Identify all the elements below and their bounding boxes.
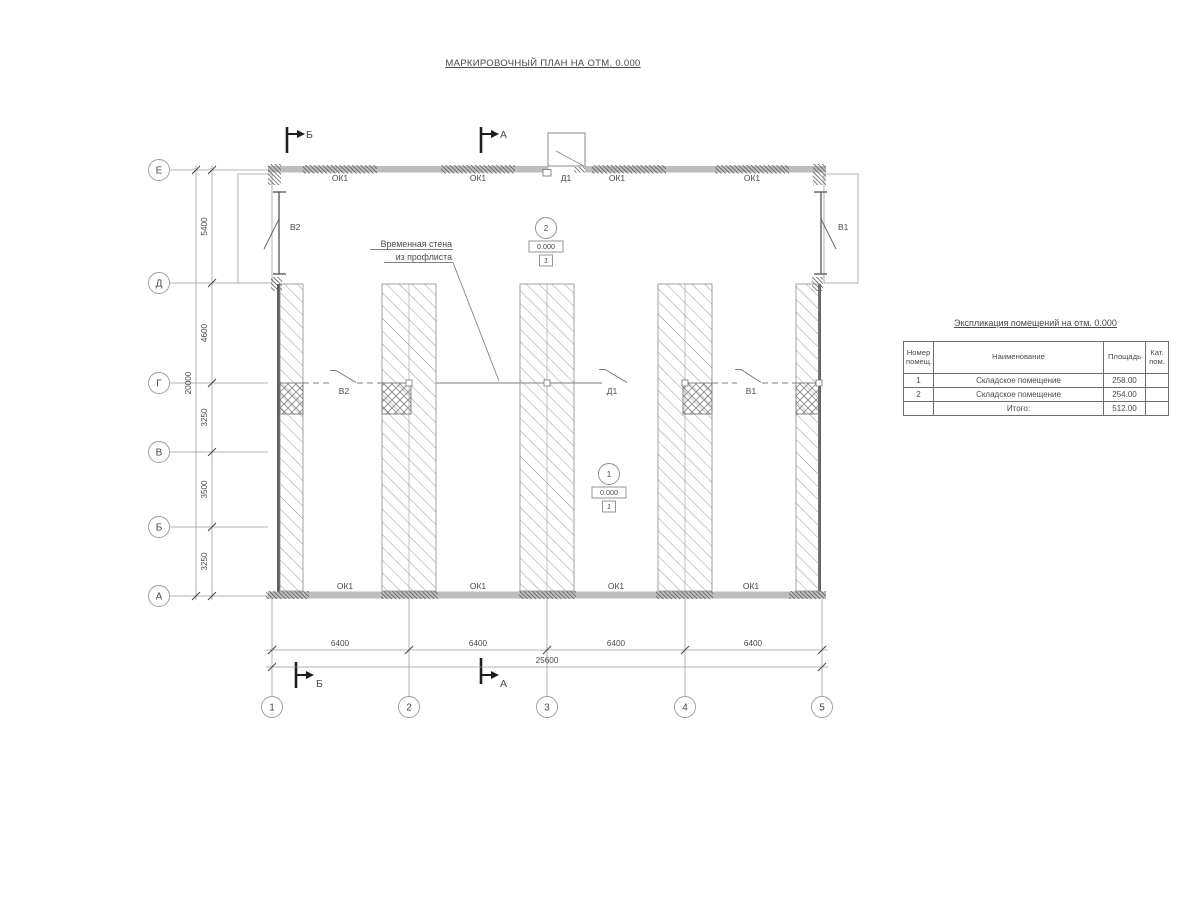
- door-swing-v1: [735, 370, 761, 383]
- axis-row-g: Г: [156, 379, 162, 390]
- gate-v1: [814, 192, 836, 274]
- section-marker-bottom-a: А: [481, 658, 507, 690]
- room-number: 1: [607, 470, 612, 479]
- cell-room-number: 2: [904, 388, 934, 402]
- schedule-table: Номер помещ. Наименование Площадь Кат. п…: [903, 341, 1169, 416]
- header-area: Площадь: [1104, 342, 1146, 374]
- total-row: Итого: 512.00: [904, 402, 1169, 416]
- axis-col-1: 1: [269, 703, 275, 714]
- cell-room-area: 258.00: [1104, 374, 1146, 388]
- header-room-number: Номер помещ.: [904, 342, 934, 374]
- dim-2-3: 6400: [469, 639, 488, 648]
- bottom-wall-pier-1: [266, 591, 309, 599]
- axis-row-e: Е: [156, 166, 163, 177]
- pilaster-strip-axis1: [280, 284, 303, 591]
- label-ok1-bottom-2: ОК1: [470, 581, 487, 591]
- label-ok1-bottom-1: ОК1: [337, 581, 354, 591]
- axis-row-d: Д: [156, 279, 163, 290]
- bottom-wall-pier-4: [656, 591, 713, 599]
- cell-room-category: [1146, 374, 1169, 388]
- callout-text-line2: из профлиста: [396, 252, 452, 262]
- section-marker-bottom-b: Б: [296, 662, 323, 690]
- dim-v-b: 3500: [200, 480, 209, 499]
- svg-text:Б: Б: [316, 678, 323, 690]
- room-tag-2: 2 0.000 1: [529, 218, 563, 267]
- pilaster-strip-axis2: [382, 284, 436, 591]
- cell-room-category: [1146, 388, 1169, 402]
- svg-text:А: А: [500, 678, 507, 690]
- dim-b-a: 3250: [200, 552, 209, 571]
- table-row: 1 Складское помещение 258.00: [904, 374, 1169, 388]
- room-elevation: 0.000: [537, 242, 555, 251]
- total-label: Итого:: [934, 402, 1104, 416]
- section-marker-top-b: Б: [287, 127, 313, 153]
- cell-room-area: 254.00: [1104, 388, 1146, 402]
- schedule-header-row: Номер помещ. Наименование Площадь Кат. п…: [904, 342, 1169, 374]
- door-swing-v2: [330, 371, 356, 383]
- top-right-corner: [813, 164, 826, 185]
- label-v1-mid: В1: [746, 386, 757, 396]
- axis-col-3: 3: [544, 703, 550, 714]
- column-axis-bubbles: 1 2 3 4 5: [262, 697, 833, 718]
- pilaster-strip-axis4: [658, 284, 712, 591]
- cell-empty: [1146, 402, 1169, 416]
- cell-room-name: Складское помещение: [934, 374, 1104, 388]
- left-apron: [238, 174, 272, 283]
- room-elevation: 0.000: [600, 488, 618, 497]
- gate-v2: [264, 192, 286, 274]
- door-sill: [574, 167, 585, 173]
- label-v2-side: В2: [290, 222, 301, 232]
- top-window-3: [592, 165, 666, 174]
- axis-col-2: 2: [406, 703, 412, 714]
- dim-1-2: 6400: [331, 639, 350, 648]
- pilaster-strip-axis3: [520, 284, 574, 591]
- dim-e-d: 5400: [200, 217, 209, 236]
- cell-room-name: Складское помещение: [934, 388, 1104, 402]
- label-d1-mid: Д1: [607, 386, 618, 396]
- axis-row-a: А: [156, 592, 163, 603]
- table-row: 2 Складское помещение 254.00: [904, 388, 1169, 402]
- top-left-corner: [268, 164, 281, 185]
- row-axis-bubbles: Е Д Г В Б А: [149, 160, 170, 607]
- dim-3-4: 6400: [607, 639, 626, 648]
- pilaster-strip-axis5: [796, 284, 819, 591]
- label-ok1-top-4: ОК1: [744, 173, 761, 183]
- svg-text:А: А: [500, 129, 507, 141]
- label-ok1-top-3: ОК1: [609, 173, 626, 183]
- section-marker-top-a: А: [481, 127, 507, 153]
- axis-col-4: 4: [682, 703, 688, 714]
- schedule-title: Экспликация помещений на отм. 0.000: [903, 318, 1168, 328]
- label-ok1-top-1: ОК1: [332, 173, 349, 183]
- door-jamb-mark: [543, 170, 551, 177]
- axis-row-v: В: [156, 448, 163, 459]
- cell-room-number: 1: [904, 374, 934, 388]
- room-tag-1: 1 0.000 1: [592, 464, 626, 513]
- floor-plan-drawing: ОК1 ОК1 ОК1 ОК1 Д1 ОК1 ОК1 ОК1 ОК1 В2 Д1…: [0, 0, 1200, 900]
- blueprint-canvas: МАРКИРОВОЧНЫЙ ПЛАН НА ОТМ. 0.000: [0, 0, 1200, 900]
- axis-row-b: Б: [156, 523, 163, 534]
- room-category: 1: [544, 256, 548, 265]
- door-swing-d1: [599, 370, 627, 383]
- bottom-wall-pier-5: [789, 591, 826, 599]
- label-v2-mid: В2: [339, 386, 350, 396]
- bottom-wall-pier-3: [519, 591, 576, 599]
- dim-4-5: 6400: [744, 639, 763, 648]
- dim-g-v: 3250: [200, 408, 209, 427]
- bottom-wall-pier-2: [381, 591, 438, 599]
- callout-text-line1: Временная стена: [381, 239, 452, 249]
- dim-left-total: 20000: [184, 371, 193, 394]
- axis-col-5: 5: [819, 703, 825, 714]
- building-walls: [238, 133, 858, 599]
- total-value: 512.00: [1104, 402, 1146, 416]
- room-number: 2: [544, 224, 549, 233]
- label-ok1-top-2: ОК1: [470, 173, 487, 183]
- header-name: Наименование: [934, 342, 1104, 374]
- callout-leader: [453, 263, 499, 382]
- dim-d-g: 4600: [200, 323, 209, 342]
- room-schedule: Экспликация помещений на отм. 0.000 Номе…: [903, 318, 1168, 416]
- cell-empty: [904, 402, 934, 416]
- entrance-vestibule: [548, 133, 585, 166]
- header-category: Кат. пом.: [1146, 342, 1169, 374]
- label-d1-top: Д1: [561, 173, 572, 183]
- room-category: 1: [607, 502, 611, 511]
- label-ok1-bottom-3: ОК1: [608, 581, 625, 591]
- svg-text:Б: Б: [306, 129, 313, 141]
- label-v1-side: В1: [838, 222, 849, 232]
- axis-grid-lines: [170, 170, 822, 696]
- label-ok1-bottom-4: ОК1: [743, 581, 760, 591]
- dim-bottom-total: 25600: [536, 656, 559, 665]
